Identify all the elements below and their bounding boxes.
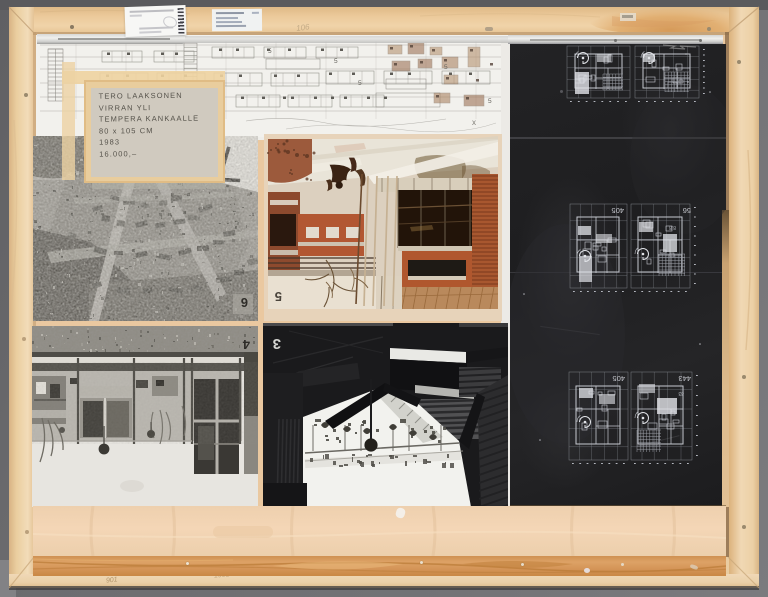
svg-text:5: 5: [444, 64, 448, 71]
svg-text:6: 6: [241, 295, 248, 310]
svg-text:5: 5: [275, 289, 282, 304]
svg-text:5: 5: [334, 58, 338, 65]
svg-text:405: 405: [611, 206, 624, 215]
svg-text:3: 3: [273, 335, 281, 352]
svg-text:56: 56: [683, 206, 691, 215]
svg-text:x: x: [472, 118, 476, 127]
svg-text:5: 5: [268, 48, 272, 55]
svg-text:4: 4: [242, 337, 250, 352]
svg-text:83: 83: [678, 390, 684, 396]
svg-text:5: 5: [488, 98, 492, 105]
svg-text:443: 443: [678, 374, 691, 383]
svg-text:405: 405: [612, 374, 625, 383]
svg-text:8.8: 8.8: [669, 224, 676, 230]
svg-text:5: 5: [358, 80, 362, 87]
